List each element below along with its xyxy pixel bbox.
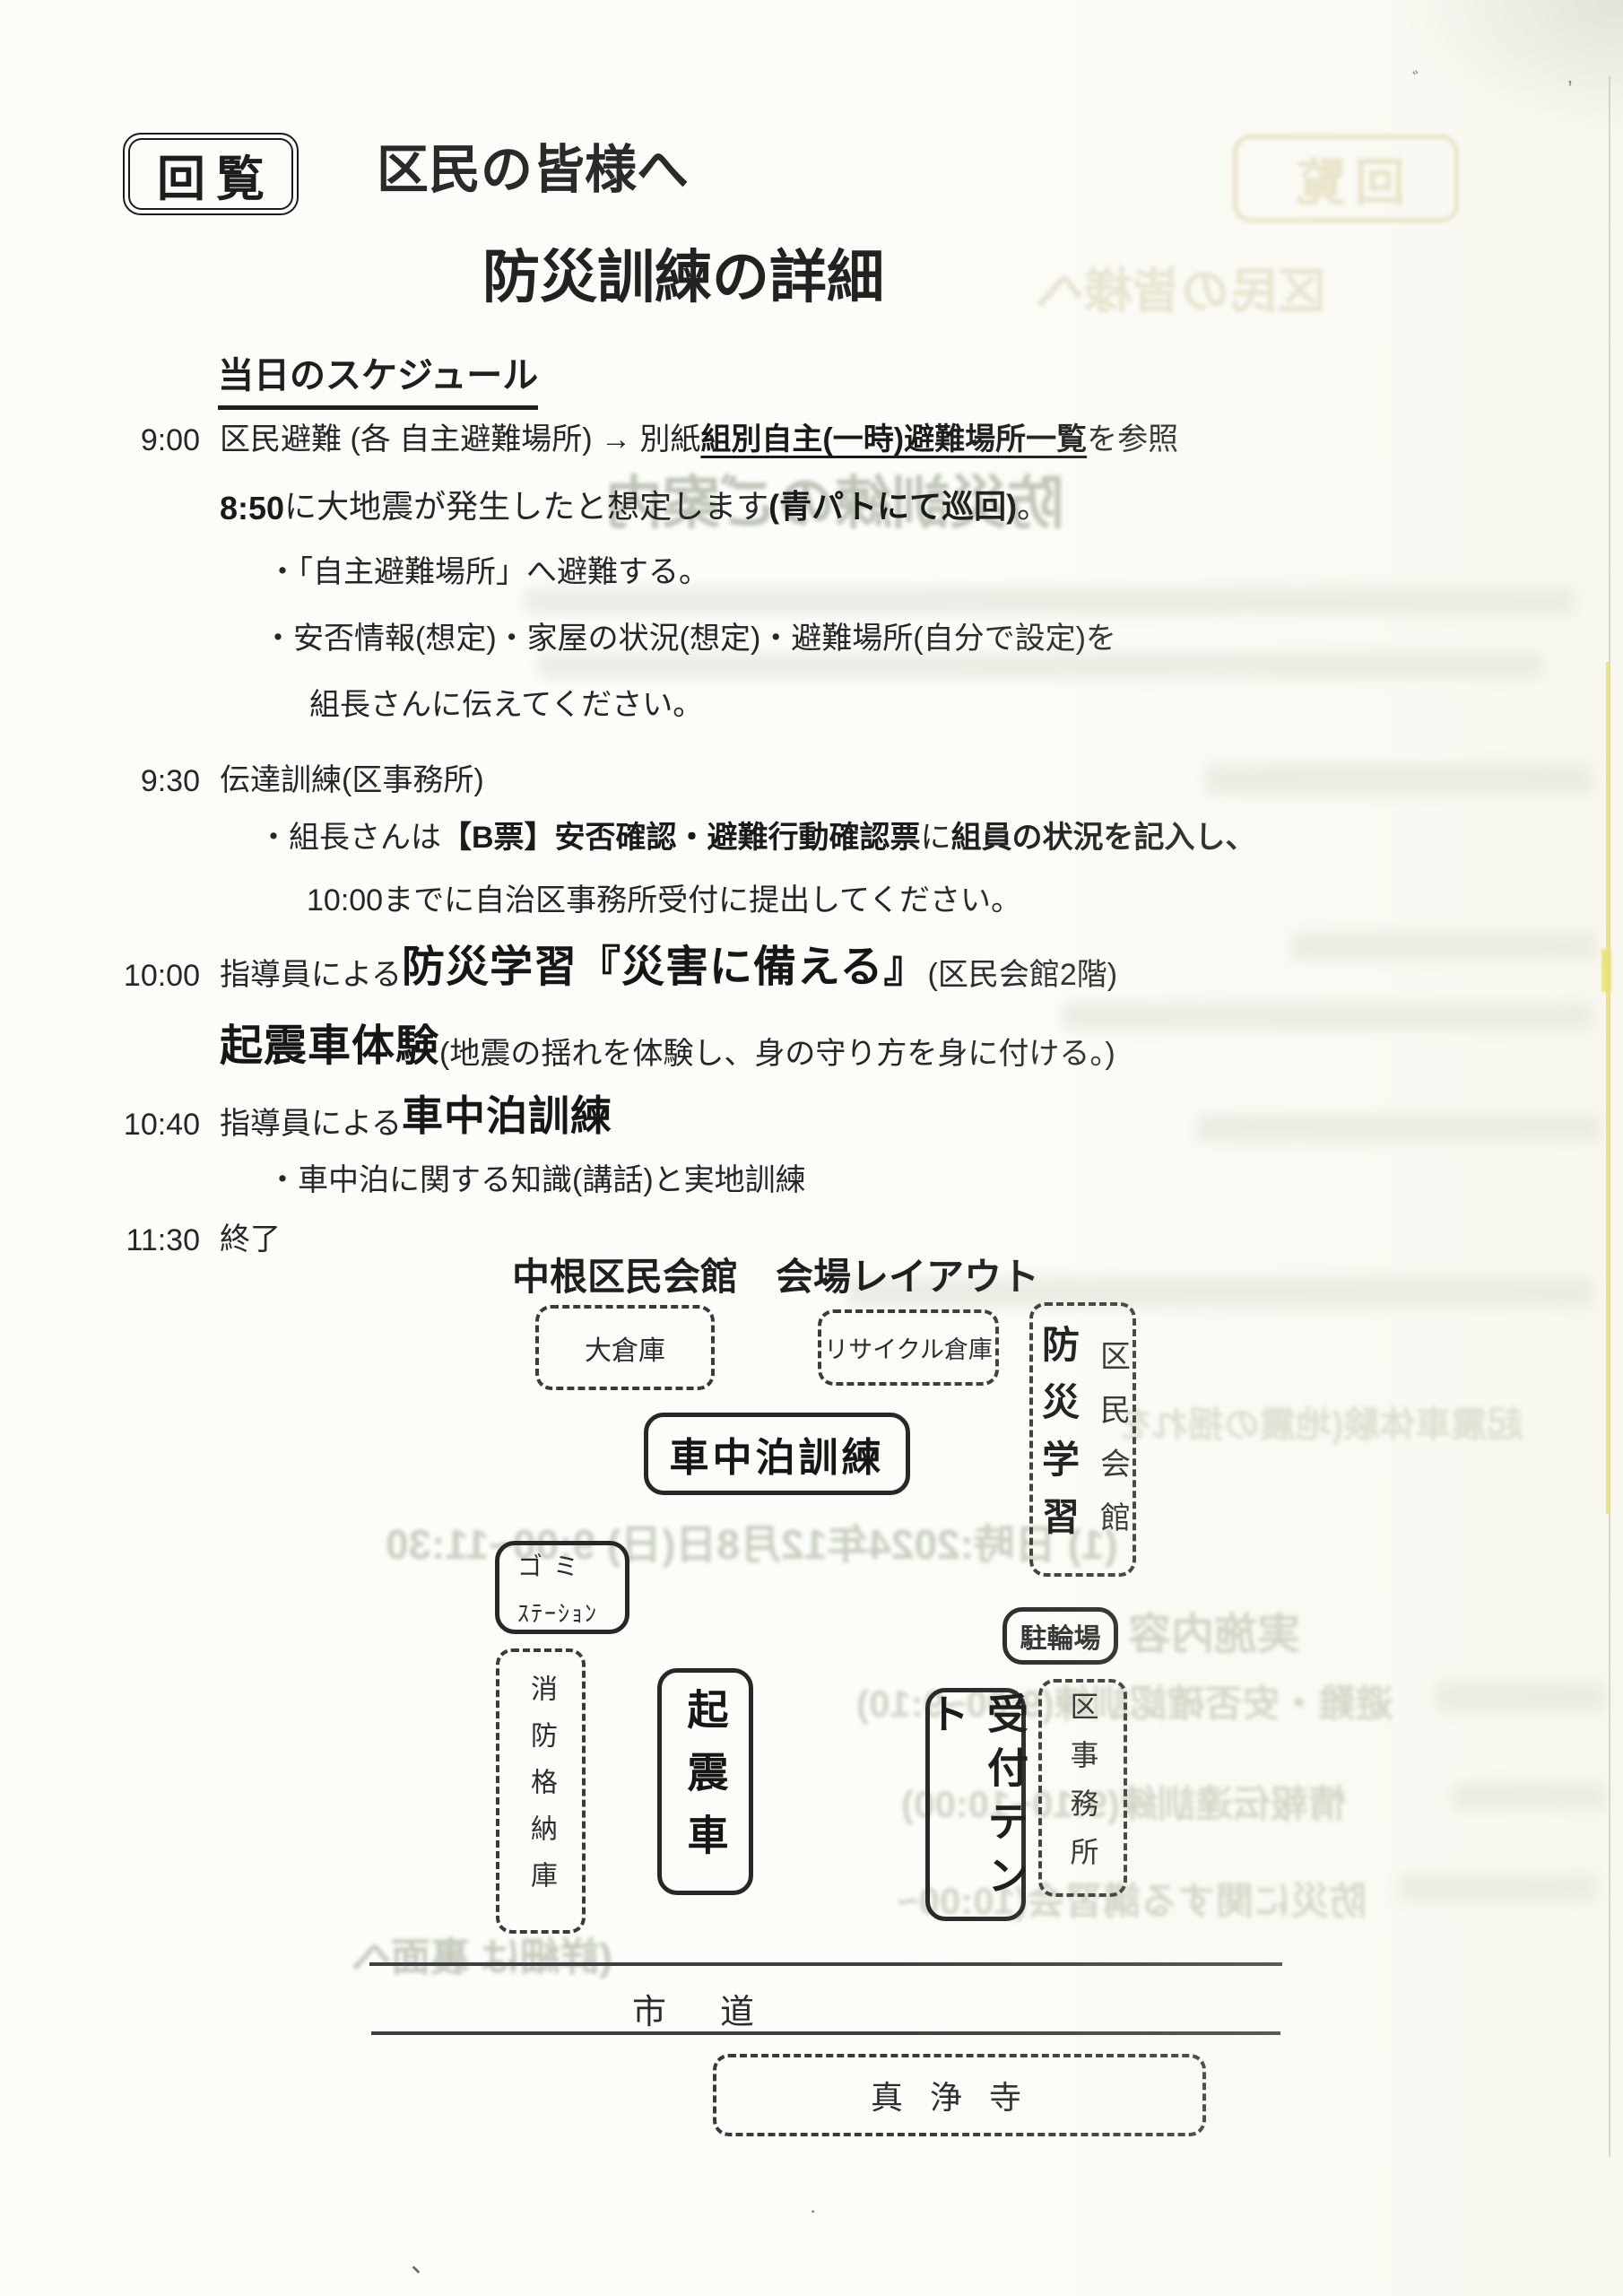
time-label: 9:00 bbox=[115, 423, 200, 458]
schedule-row: 10:00までに自治区事務所受付に提出してください。 bbox=[307, 875, 1021, 919]
gomi-line1: ゴミ bbox=[517, 1547, 589, 1583]
schedule-text-segment: ・組長さんは bbox=[258, 813, 441, 857]
schedule-text-segment: ・車中泊に関する知識(講話)と実地訓練 bbox=[267, 1155, 806, 1199]
bleedthrough-text: 実施内容 bbox=[1128, 1598, 1300, 1661]
layout-box-recycle: リサイクル倉庫 bbox=[818, 1309, 999, 1386]
bleedthrough-blur-bar bbox=[1291, 933, 1596, 960]
bleedthrough-blur-bar bbox=[1399, 1874, 1596, 1901]
schedule-row: 8:50に大地震が発生したと想定します(青パトにて巡回)。 bbox=[220, 481, 1049, 527]
layout-box-shobo: 消防格納庫 bbox=[496, 1648, 586, 1934]
bleedthrough-text: 回覧 bbox=[1233, 135, 1459, 222]
schedule-text-segment: 起震車体験 bbox=[220, 1010, 439, 1073]
schedule-text-segment: 終了 bbox=[220, 1214, 281, 1258]
heading-to-residents: 区民の皆様へ bbox=[377, 127, 689, 203]
layout-box-kujimusho: 区事務所 bbox=[1038, 1679, 1127, 1897]
schedule-text-segment: 10:00までに自治区事務所受付に提出してください。 bbox=[307, 875, 1021, 919]
temple-label: 真浄寺 bbox=[871, 2072, 1048, 2118]
layout-box-bosai-label: 防災学習 bbox=[1031, 1325, 1086, 1554]
document-title: 防災訓練の詳細 bbox=[482, 231, 884, 314]
scan-speck: ゛ bbox=[1412, 65, 1432, 93]
schedule-row: 11:30終了 bbox=[220, 1214, 281, 1258]
layout-box-uketsuke: 受付テント bbox=[925, 1688, 1026, 1921]
schedule-row: 10:40指導員による車中泊訓練 bbox=[220, 1083, 612, 1143]
schedule-text-segment: 指導員による bbox=[220, 1099, 402, 1143]
layout-box-bosai: 防災学習区民会館 bbox=[1029, 1302, 1136, 1577]
schedule-text-segment: (区民会館2階) bbox=[928, 950, 1118, 994]
time-label: 10:40 bbox=[115, 1108, 200, 1143]
schedule-text-segment: 【B票】安否確認・避難行動確認票 bbox=[441, 813, 921, 857]
scan-speck: 、 bbox=[411, 2240, 438, 2280]
time-label: 9:30 bbox=[115, 764, 200, 799]
bleedthrough-blur-bar bbox=[525, 587, 1574, 614]
schedule-text-segment: 組別自主(一時)避難場所一覧 bbox=[700, 414, 1087, 458]
highlighter-line bbox=[1606, 662, 1610, 1514]
schedule-row: 9:30伝達訓練(区事務所) bbox=[220, 755, 484, 799]
time-label: 10:00 bbox=[115, 959, 200, 994]
schedule-row: ・「自主避難場所」へ避難する。 bbox=[267, 547, 709, 591]
road-line-bottom bbox=[371, 2031, 1280, 2035]
layout-box-okura: 大倉庫 bbox=[535, 1305, 715, 1390]
bleedthrough-blur-bar bbox=[1063, 1003, 1592, 1030]
schedule-text-segment: ・「自主避難場所」へ避難する。 bbox=[267, 547, 709, 591]
bleedthrough-blur-bar bbox=[1206, 764, 1592, 795]
road-label: 市道 bbox=[632, 1984, 808, 2033]
schedule-row: 10:00指導員による防災学習『災害に備える』 (区民会館2階) bbox=[220, 931, 1117, 994]
bleedthrough-blur-bar bbox=[1197, 1115, 1601, 1142]
schedule-text-segment: に bbox=[921, 813, 951, 857]
scan-speck: · bbox=[810, 2199, 816, 2222]
scan-tint-overlay bbox=[0, 0, 1623, 2296]
scan-speck: ’ bbox=[1567, 75, 1573, 103]
schedule-text-segment: 組員の状況を記入し、 bbox=[951, 813, 1256, 857]
schedule-row: 起震車体験 (地震の揺れを体験し、身の守り方を身に付ける。) bbox=[220, 1010, 1115, 1073]
kairan-stamp-box: 回覧 bbox=[123, 133, 299, 215]
schedule-text-segment: 8:50 bbox=[220, 490, 284, 527]
schedule-text-segment: 区民避難 (各 自主避難場所) → 別紙 bbox=[220, 414, 700, 458]
schedule-text-segment: ・安否情報(想定)・家屋の状況(想定)・避難場所(自分で設定)を bbox=[263, 613, 1116, 657]
schedule-heading: 当日のスケジュール bbox=[218, 346, 538, 410]
schedule-text-segment: を参照 bbox=[1087, 414, 1178, 458]
scanned-notice-page: 回覧区民の皆様へ防災訓練のご案内起震車体験(地震の揺れを(1) 日時:2024年… bbox=[0, 0, 1623, 2296]
scan-corner-shade bbox=[1399, 0, 1623, 135]
bleedthrough-blur-bar bbox=[1435, 1682, 1605, 1712]
schedule-row: ・組長さんは【B票】安否確認・避難行動確認票に組員の状況を記入し、 bbox=[258, 813, 1256, 857]
schedule-text-segment: に大地震が発生したと想定します bbox=[284, 481, 768, 527]
layout-box-gomi: ゴミｽﾃｰｼｮﾝ bbox=[495, 1541, 629, 1634]
schedule-text-segment: 指導員による bbox=[220, 950, 402, 994]
layout-box-shachuhaku: 車中泊訓練 bbox=[644, 1413, 910, 1495]
layout-diagram-title: 中根区民会館 会場レイアウト bbox=[484, 1247, 1067, 1301]
schedule-text-segment: 。 bbox=[1017, 481, 1049, 527]
highlighter-blob bbox=[1601, 949, 1611, 992]
schedule-row: ・車中泊に関する知識(講話)と実地訓練 bbox=[267, 1155, 806, 1199]
kairan-stamp-label: 回覧 bbox=[146, 139, 275, 210]
bleedthrough-blur-bar bbox=[1453, 1783, 1605, 1810]
bleedthrough-text: 区民の皆様へ bbox=[1036, 251, 1326, 322]
schedule-text-segment: 伝達訓練(区事務所) bbox=[220, 755, 484, 799]
gomi-line2: ｽﾃｰｼｮﾝ bbox=[517, 1596, 598, 1629]
road-line-top bbox=[369, 1962, 1282, 1966]
layout-box-shinjoji: 真浄寺 bbox=[713, 2054, 1206, 2136]
schedule-row: 組長さんに伝えてください。 bbox=[309, 680, 703, 724]
layout-box-kishinsha: 起震車 bbox=[657, 1668, 753, 1895]
bleedthrough-text: (詳細は 裏面へ bbox=[352, 1925, 612, 1982]
schedule-text-segment: 車中泊訓練 bbox=[402, 1083, 612, 1143]
time-label: 11:30 bbox=[115, 1223, 200, 1258]
schedule-row: 9:00区民避難 (各 自主避難場所) → 別紙 組別自主(一時)避難場所一覧 … bbox=[220, 414, 1178, 458]
schedule-text-segment: (青パトにて巡回) bbox=[768, 481, 1017, 527]
layout-box-churinjo: 駐輪場 bbox=[1002, 1607, 1118, 1665]
schedule-text-segment: (地震の揺れを体験し、身の守り方を身に付ける。) bbox=[439, 1029, 1115, 1073]
schedule-text-segment: 組長さんに伝えてください。 bbox=[309, 680, 703, 724]
bleedthrough-text: 起震車体験(地震の揺れを bbox=[1116, 1396, 1523, 1448]
layout-box-bosai-label2: 区民会館 bbox=[1091, 1340, 1135, 1555]
schedule-text-segment: 防災学習『災害に備える』 bbox=[402, 931, 928, 994]
schedule-row: ・安否情報(想定)・家屋の状況(想定)・避難場所(自分で設定)を bbox=[263, 613, 1116, 657]
